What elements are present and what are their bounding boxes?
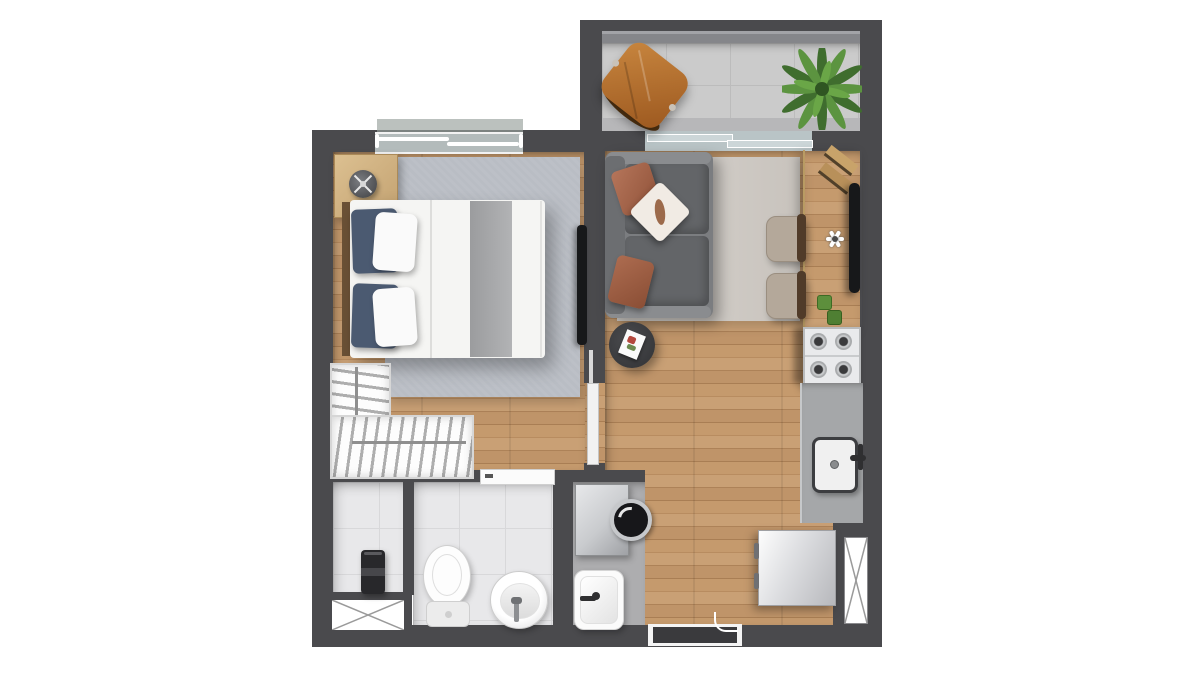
wardrobe-bottom bbox=[330, 415, 474, 479]
kitchen-faucet-handle bbox=[858, 444, 863, 470]
window-jamb-left bbox=[375, 134, 379, 148]
fridge-handle-1 bbox=[754, 543, 759, 559]
sink-drain bbox=[830, 460, 839, 469]
heater-band bbox=[361, 568, 385, 576]
lamp-center bbox=[360, 181, 366, 187]
flower-decor bbox=[824, 228, 846, 250]
potted-plant bbox=[782, 48, 862, 130]
window-sash-right bbox=[447, 142, 519, 146]
dining-chair-1-back bbox=[797, 214, 806, 262]
dining-chair-2-back bbox=[797, 271, 806, 319]
green-cup-2 bbox=[827, 310, 842, 325]
burner bbox=[810, 333, 827, 350]
duct-shaft-service bbox=[330, 598, 406, 632]
living-tv bbox=[849, 183, 860, 293]
green-cup-1 bbox=[817, 295, 832, 310]
duvet-fold bbox=[430, 200, 432, 358]
chair-fold-line bbox=[624, 62, 638, 119]
window-sash-left bbox=[377, 137, 449, 141]
white-pillow-1 bbox=[372, 212, 418, 273]
balcony-sliding-door bbox=[645, 131, 812, 151]
mattress-edge bbox=[540, 201, 542, 357]
coffee-table bbox=[609, 322, 655, 368]
toilet-bowl bbox=[423, 545, 471, 607]
table-lamp bbox=[349, 170, 377, 198]
duct-shaft-kitchen bbox=[844, 537, 868, 624]
burner bbox=[835, 361, 852, 378]
wall-bath-laundry bbox=[553, 482, 573, 628]
toilet-seat-inner bbox=[432, 554, 462, 596]
tub-faucet-handle bbox=[592, 592, 600, 600]
white-pillow-2 bbox=[372, 287, 418, 348]
wardrobe-rail-horizontal bbox=[352, 441, 466, 444]
magazine-print-green bbox=[626, 343, 636, 351]
sliding-panel-right bbox=[727, 140, 813, 148]
entry-door-handle bbox=[714, 612, 738, 632]
magazine bbox=[618, 329, 646, 360]
bathroom-door-handle bbox=[485, 474, 493, 478]
bedroom-wall-tv bbox=[577, 225, 587, 345]
washer-drum bbox=[610, 499, 652, 541]
sliding-panel-left bbox=[647, 134, 733, 142]
cooktop-divider bbox=[805, 355, 859, 357]
kitchen-sink bbox=[812, 437, 858, 493]
flower-center bbox=[832, 236, 838, 242]
wall-balcony-left bbox=[580, 20, 602, 132]
floor-plan bbox=[0, 0, 1200, 673]
x-mark-icon bbox=[332, 600, 404, 630]
heater-cap bbox=[364, 552, 382, 555]
bedroom-window bbox=[375, 132, 523, 154]
burner bbox=[810, 361, 827, 378]
bedroom-sliding-door bbox=[587, 383, 599, 465]
pillow-swoosh bbox=[653, 198, 666, 225]
flush-button bbox=[445, 611, 452, 618]
water-heater bbox=[361, 550, 385, 594]
bathroom-door bbox=[480, 469, 555, 485]
refrigerator bbox=[758, 530, 836, 606]
gray-runner bbox=[470, 201, 512, 357]
chair-fold-line bbox=[638, 50, 651, 101]
bed-headboard bbox=[342, 202, 350, 356]
burner bbox=[835, 333, 852, 350]
window-jamb-right bbox=[519, 134, 523, 148]
wall-service-divider bbox=[403, 482, 414, 595]
drum-glass-highlight bbox=[613, 502, 646, 535]
x-mark-icon bbox=[845, 538, 867, 623]
cooktop bbox=[803, 327, 861, 387]
fridge-handle-2 bbox=[754, 573, 759, 589]
basin-faucet-head bbox=[511, 597, 522, 604]
wall-divider-bedroom bbox=[584, 150, 605, 383]
bedroom-window-glass-outside bbox=[377, 119, 523, 132]
toilet-cistern bbox=[426, 601, 470, 627]
